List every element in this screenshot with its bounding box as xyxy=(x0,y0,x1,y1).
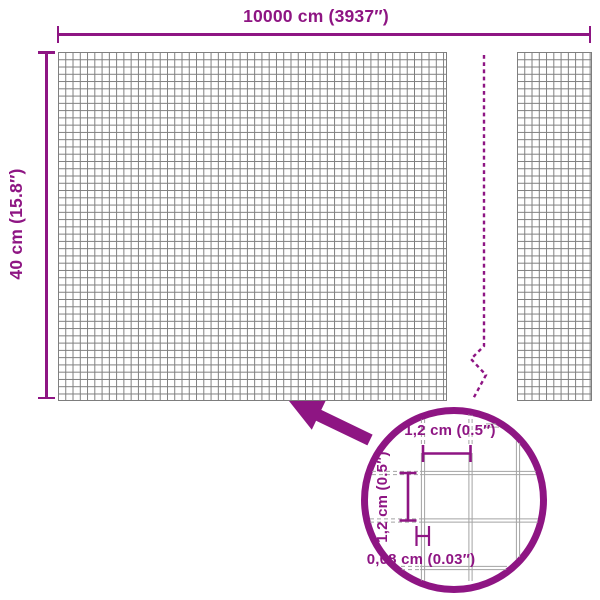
mesh-pitch-horizontal-label: 1,2 cm (0.5″) xyxy=(370,421,530,440)
mesh-pitch-vertical-label: 1,2 cm (0.5″) xyxy=(373,437,391,557)
break-line xyxy=(471,55,486,399)
zoom-arrow-icon xyxy=(289,401,373,446)
product-dimension-diagram: 10000 cm (3937″) 40 cm (15.8″) xyxy=(0,0,600,600)
wire-thickness-label: 0,08 cm (0.03″) xyxy=(341,550,501,569)
diagram-overlay xyxy=(0,0,600,600)
